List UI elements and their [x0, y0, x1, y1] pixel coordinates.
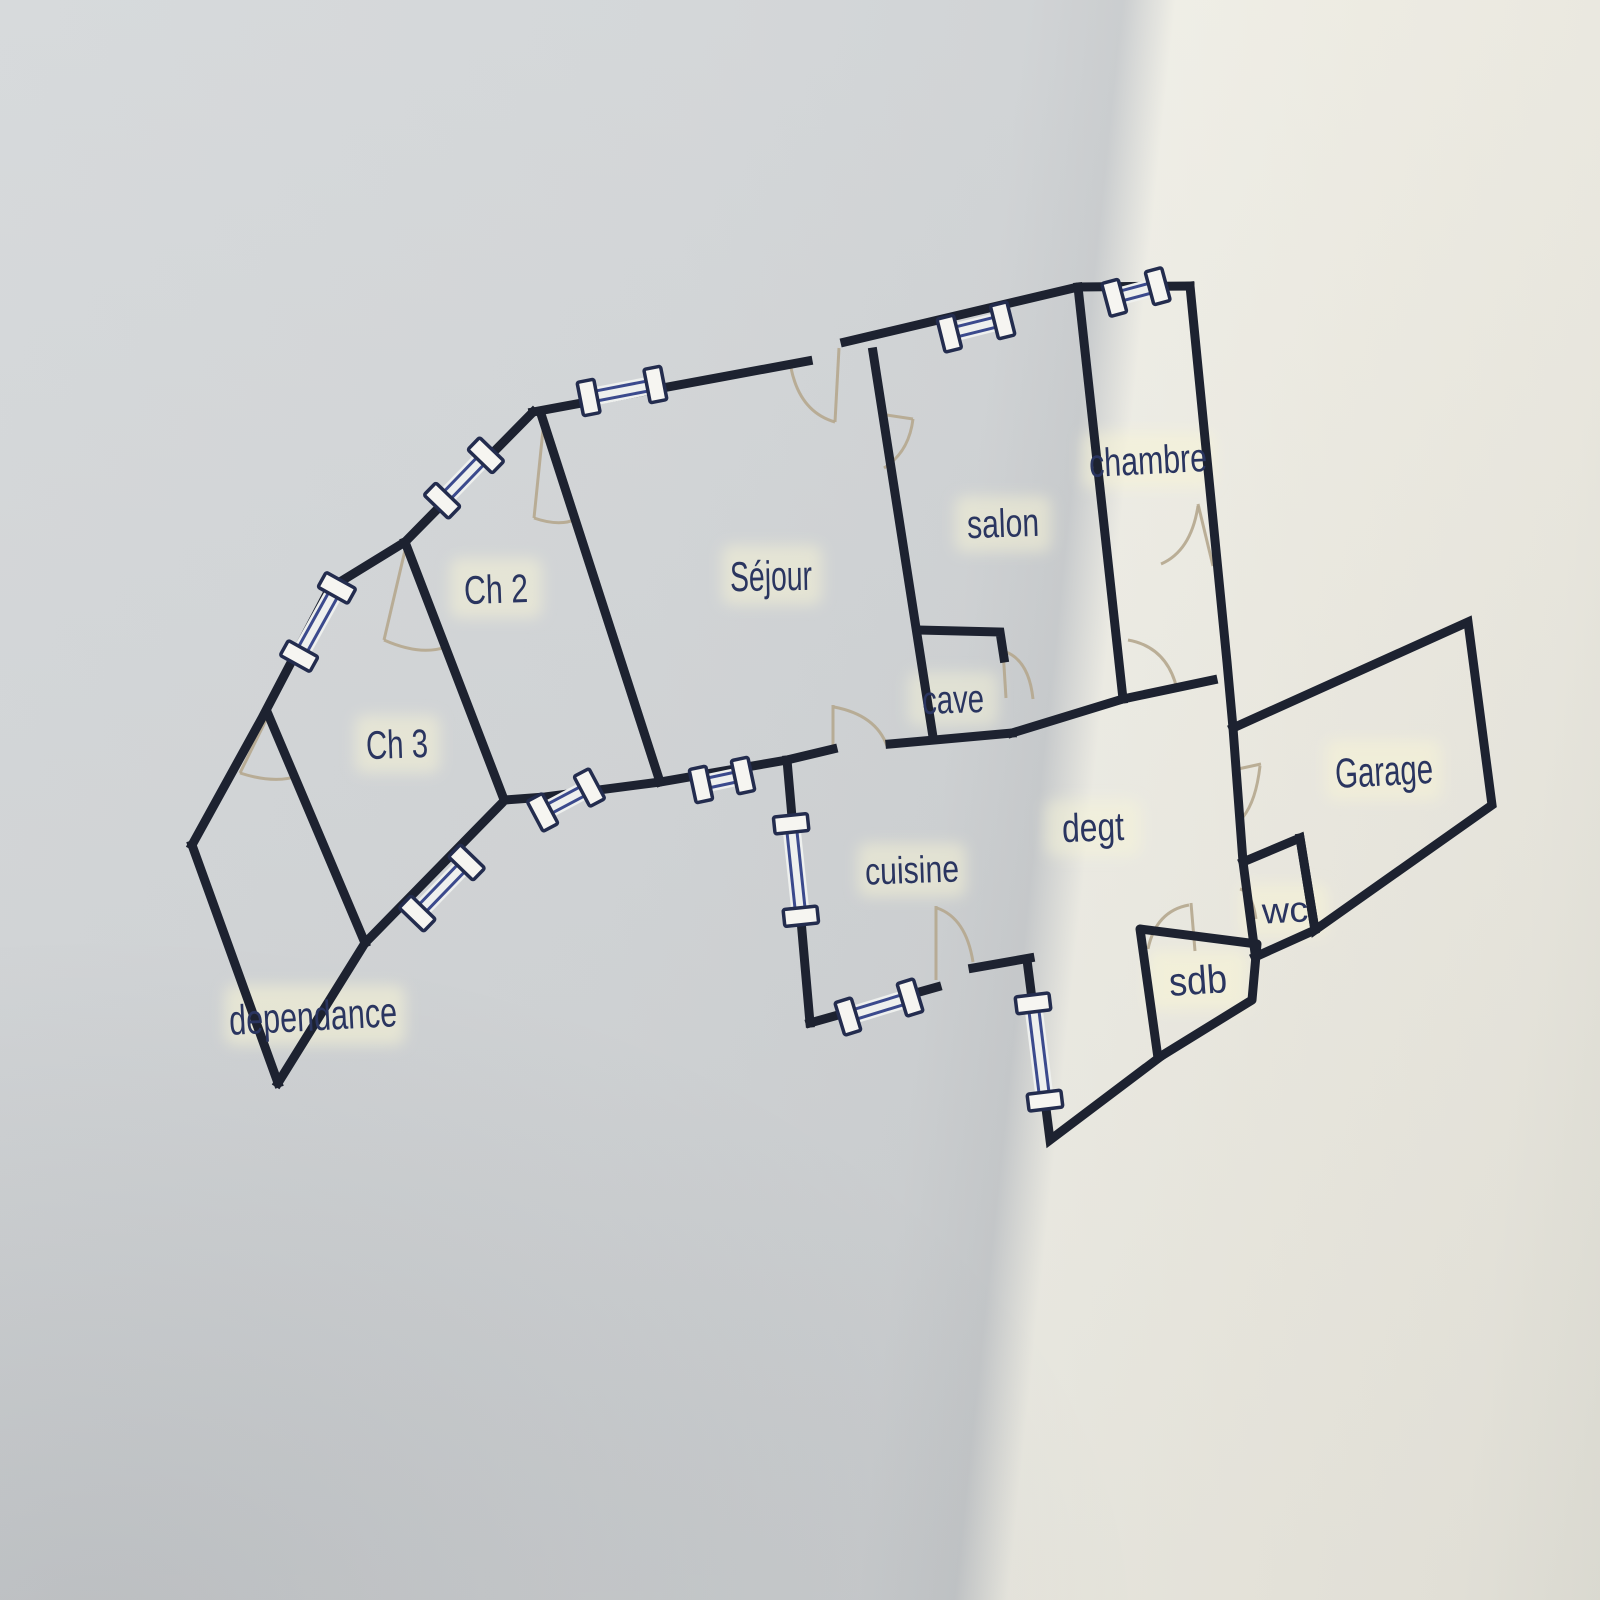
wall-main-right — [1012, 680, 1213, 733]
door-arc — [534, 518, 576, 523]
window-symbol — [835, 979, 923, 1035]
window-symbol — [577, 366, 667, 416]
door-arc — [791, 368, 835, 422]
door-arc — [834, 707, 887, 746]
wall-sejour-top — [533, 361, 808, 412]
room-label-wc: wc — [1260, 888, 1309, 931]
door-arc — [835, 348, 839, 422]
room-label-ch2: Ch 2 — [463, 567, 528, 613]
window-symbol — [424, 437, 504, 518]
wall-ch2-divider — [542, 417, 660, 782]
wall-dependance-divider — [268, 714, 365, 943]
wall-dependance-left — [192, 845, 278, 1083]
wall-sejour-bottom-right — [890, 733, 1012, 744]
door-arc — [534, 420, 544, 518]
room-label-cave: cave — [921, 677, 984, 723]
wall-cuisine-bottom-right — [973, 958, 1030, 968]
wall-chambre-divider — [1078, 287, 1123, 699]
door-arc — [384, 546, 406, 640]
door-arc — [384, 640, 446, 650]
wall-outer-topleft — [192, 412, 533, 845]
room-label-sejour: Séjour — [730, 552, 813, 600]
door-arc — [1191, 903, 1195, 951]
window-symbol — [280, 572, 356, 672]
room-label-cuisine: cuisine — [864, 848, 959, 893]
wall-cave-top — [918, 630, 1004, 658]
window-symbol — [399, 845, 485, 932]
room-label-garage: Garage — [1334, 745, 1434, 797]
room-label-sdb: sdb — [1168, 957, 1229, 1005]
door-arc — [1238, 764, 1261, 769]
window-symbol — [1102, 268, 1171, 317]
window-symbols — [280, 268, 1170, 1112]
window-symbol — [689, 757, 755, 803]
room-label-chambre: chambre — [1088, 436, 1208, 486]
door-arc — [1243, 766, 1260, 817]
room-label-dependance: dependance — [228, 988, 398, 1044]
door-arc — [937, 908, 973, 962]
door-arc — [1006, 652, 1033, 699]
window-symbol — [1015, 993, 1063, 1111]
door-arc — [1128, 640, 1177, 689]
room-label-salon: salon — [966, 501, 1039, 547]
door-arc — [1161, 506, 1198, 564]
wall-right-vertical — [1190, 286, 1255, 953]
window-symbol — [773, 814, 818, 927]
room-label-degt: degt — [1061, 805, 1124, 851]
window-symbol — [527, 769, 605, 832]
floor-plan: dependance Ch 3 Ch 2 Séjour salon chambr… — [0, 0, 1600, 1600]
room-label-ch3: Ch 3 — [365, 722, 428, 768]
